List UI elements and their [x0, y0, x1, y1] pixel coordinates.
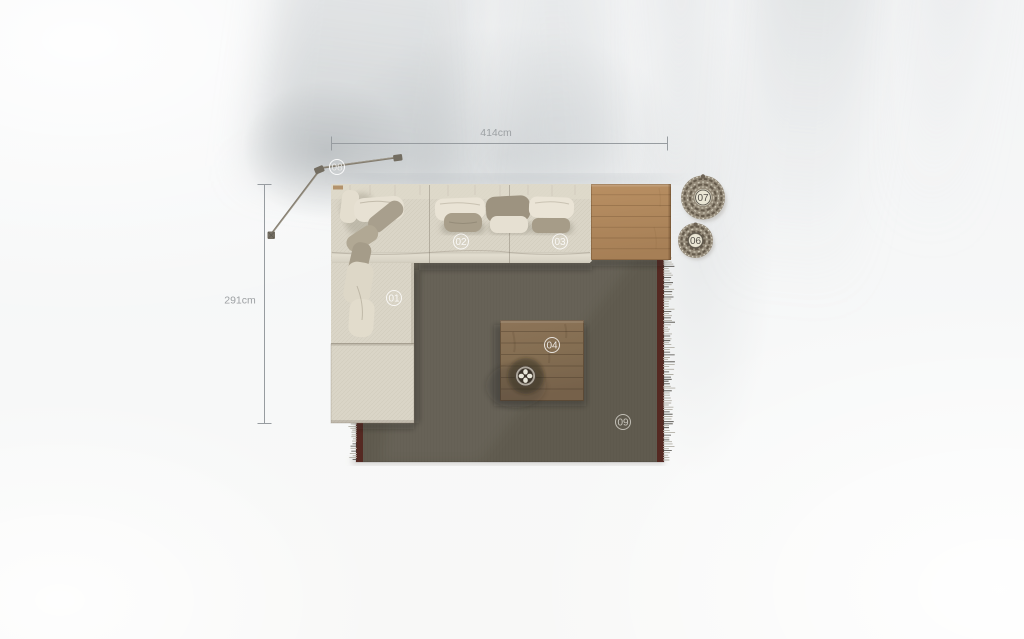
svg-text:04: 04: [546, 341, 558, 352]
svg-text:414cm: 414cm: [480, 127, 512, 139]
svg-text:03: 03: [554, 237, 566, 248]
svg-text:02: 02: [455, 237, 467, 248]
svg-text:291cm: 291cm: [224, 295, 256, 307]
svg-text:08: 08: [331, 163, 343, 174]
svg-text:06: 06: [690, 236, 702, 247]
svg-text:07: 07: [697, 193, 709, 204]
svg-text:09: 09: [617, 418, 629, 429]
svg-text:01: 01: [388, 294, 400, 305]
